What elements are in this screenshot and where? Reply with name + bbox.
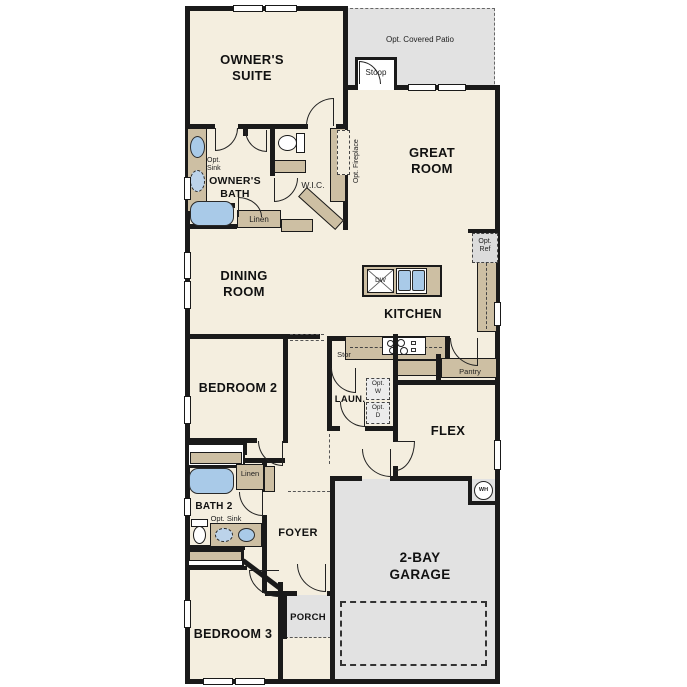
window [184,600,191,628]
optional-sink [215,528,233,542]
sink [238,528,255,542]
window [184,177,191,200]
wall [393,380,500,385]
room-label-bedroom2: BEDROOM 2 [178,381,298,397]
room-label-laundry: LAUN. [329,394,371,406]
label-stor: Stor [329,350,359,359]
hall-opening [290,334,324,341]
label-opt-sink-owners: Opt. Sink [207,157,235,174]
label-opt-washer: Opt. W [366,380,390,396]
label-opt-fireplace: Opt. Fireplace [353,126,361,196]
wall [393,380,398,442]
window [494,302,501,326]
window [265,5,297,12]
label-dishwasher: DW [367,277,394,285]
wall [365,426,398,431]
label-water-heater: WH [474,487,493,494]
room-label-kitchen: KITCHEN [363,307,463,323]
wall [468,229,498,233]
wall [330,476,362,481]
window [184,396,191,424]
cooktop-knob [411,341,416,345]
toilet-bowl [193,526,206,544]
window [203,678,233,685]
optional-fireplace [337,130,350,175]
room-label-flex: FLEX [408,423,488,439]
label-opt-dryer: Opt. D [366,404,390,420]
window [235,678,265,685]
room-label-patio: Opt. Covered Patio [345,35,495,45]
wall [262,515,267,547]
room-label-owners-bath: OWNER'S BATH [196,175,274,201]
foyer-opening [288,491,330,492]
closet-shelf [190,452,242,464]
burner [400,347,408,355]
room-label-bath2: BATH 2 [185,501,243,514]
wall [468,501,498,505]
label-linen-owners: Linen [237,215,281,225]
bathtub [190,201,234,226]
hall-opening [329,434,330,464]
bathtub [189,468,234,494]
label-opt-ref: Opt. Ref [472,238,498,255]
counter-dashed-line [486,263,487,329]
toilet-bowl [278,135,297,151]
wic-shelf [281,219,313,232]
closet-shelf [189,551,242,561]
window [494,440,501,470]
sink [190,136,205,158]
wall [390,476,470,481]
room-label-great-room: GREAT ROOM [372,145,492,178]
wall [343,6,348,89]
room-label-bedroom3: BEDROOM 3 [177,627,289,643]
wall [185,6,190,684]
porch-dashed-edge [285,637,331,638]
wall [330,476,335,684]
room-label-garage: 2-BAY GARAGE [360,550,480,584]
room-label-stoop: Stoop [353,68,399,78]
room-label-wic: W.I.C. [288,180,338,190]
garage-door-outline [340,601,487,666]
floor-plan: OWNER'S SUITE Opt. Covered Patio Stoop G… [0,0,687,687]
wall [393,334,398,384]
room-label-foyer: FOYER [268,527,328,541]
wall [327,591,335,596]
cooktop-knob [411,348,416,352]
sink-basin [412,270,425,291]
label-pantry: Pantry [446,367,494,376]
room-label-dining: DINING ROOM [189,268,299,301]
bath-divider [274,160,306,173]
sink-basin [398,270,411,291]
label-opt-sink-bath2: Opt. Sink [200,514,252,523]
window [233,5,263,12]
label-linen-bath2: Linen [234,469,266,478]
window [408,84,436,91]
toilet-tank [296,133,305,153]
wall [327,426,340,431]
room-label-owners-suite: OWNER'S SUITE [192,52,312,85]
burner [397,339,405,347]
window [438,84,466,91]
room-label-porch: PORCH [284,612,332,624]
